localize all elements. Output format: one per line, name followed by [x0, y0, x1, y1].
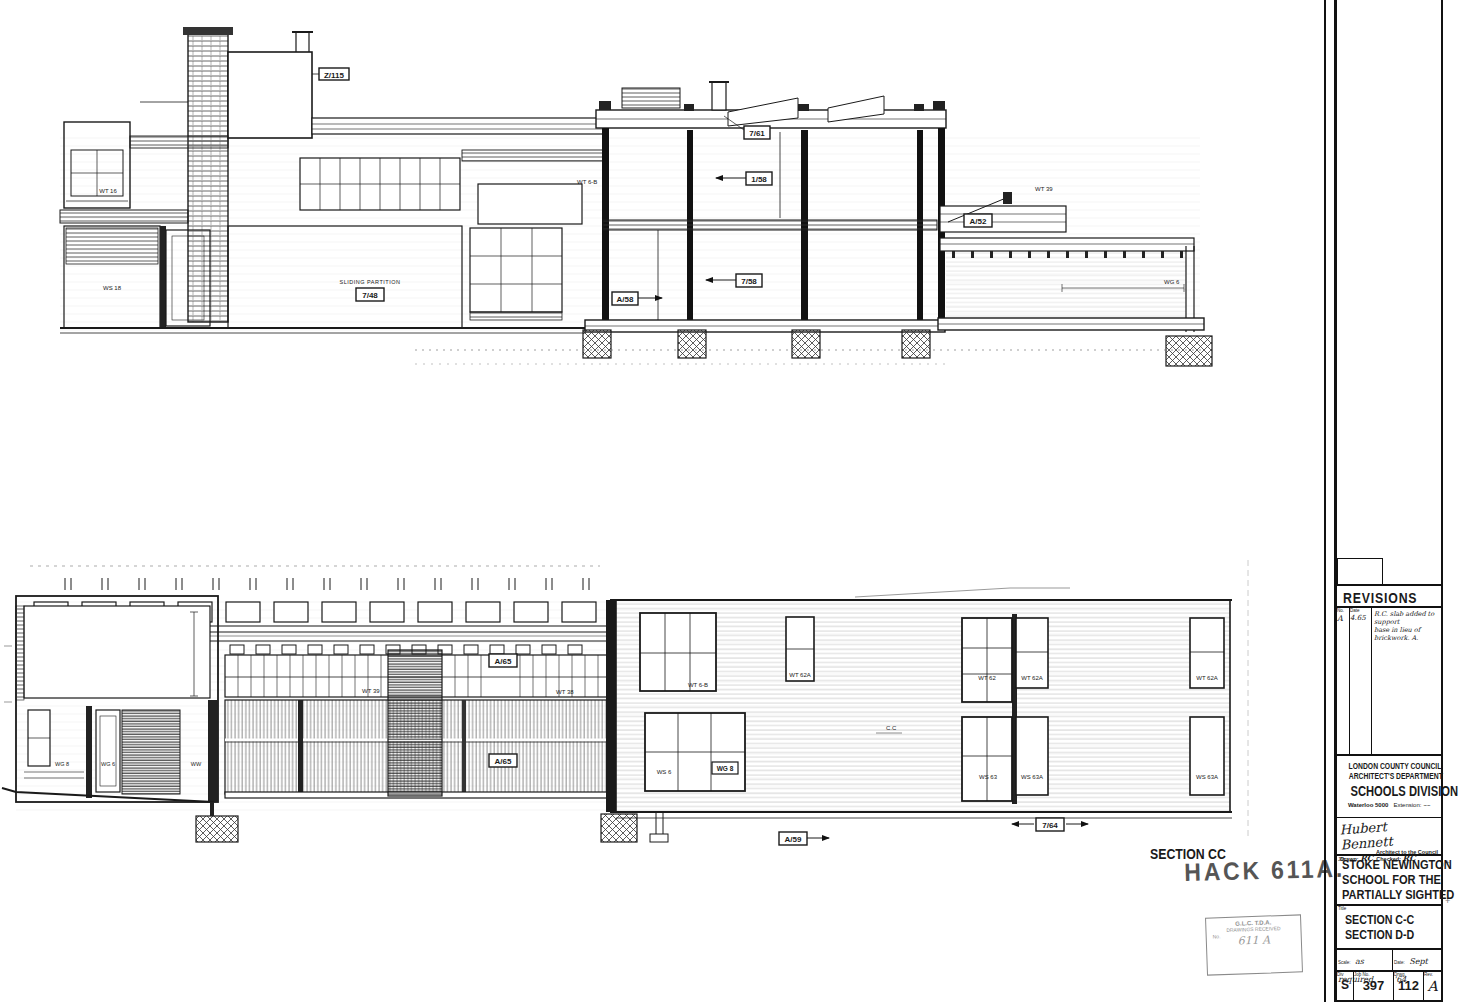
titleblock-revisions-header: REVISIONS: [1337, 584, 1441, 608]
window-tag: WT 16: [99, 188, 117, 194]
window-tag: WG 6: [1164, 279, 1180, 285]
titleblock-scale-date: Scale: as required Date: Sept '64.: [1337, 950, 1441, 972]
window-tag: WT 62: [978, 675, 996, 681]
window-tag: WG 8: [717, 765, 734, 772]
section-cc-drawing: WG 8 WG 6 WW: [2, 560, 1248, 845]
titleblock-title: Title SECTION C-C SECTION D-D: [1337, 906, 1441, 950]
titleblock-revisions-table: No. A Date 4.65 R.C. slab added to suppo…: [1337, 608, 1441, 756]
titleblock-spare-box: [1337, 558, 1383, 585]
window-tag: WT 62A: [1196, 675, 1218, 681]
job-title-line3: PARTIALLY SIGHTED: [1342, 887, 1454, 902]
detail-ref: A/65: [495, 757, 512, 766]
date-label: Date:: [1394, 960, 1405, 965]
div-value: S: [1337, 978, 1353, 992]
council-line1: LONDON COUNTY COUNCIL: [1349, 761, 1442, 771]
extension-label: Extension:: [1393, 802, 1421, 808]
window-tag: WS 63A: [1021, 774, 1043, 780]
titleblock-numbers: Div S Job No. 397 Drwg. 112 Rev. A: [1337, 972, 1441, 1002]
detail-ref: 7/48: [362, 291, 378, 300]
window-tag: WS 6: [657, 769, 672, 775]
rev-entry-no: A: [1337, 614, 1349, 623]
sheet-border-line: [1441, 0, 1443, 1002]
window-tag: WG 8: [55, 761, 69, 767]
detail-ref: 1/58: [751, 175, 767, 184]
detail-ref: A/58: [617, 295, 634, 304]
division-name: SCHOOLS DIVISION: [1350, 783, 1458, 799]
window-tag: WT 62A: [789, 672, 811, 678]
drwg-no-value: 112: [1394, 978, 1423, 993]
drawing-title-line1: SECTION C-C: [1345, 912, 1414, 927]
window-tag: WS 63: [979, 774, 998, 780]
level-mark: C.C: [886, 725, 897, 731]
extension-value: ––: [1423, 801, 1430, 809]
job-title-line2: SCHOOL FOR THE: [1342, 872, 1441, 887]
window-tag: WT 39: [1035, 186, 1053, 192]
revisions-title: REVISIONS: [1343, 589, 1417, 606]
window-tag: WT 39: [362, 688, 380, 694]
window-tag: WT 62A: [1021, 675, 1043, 681]
hack-611a-stamp: HACK 611A.: [1184, 854, 1345, 887]
rev-entry-note-line2: base in lieu of brickwork. A.: [1374, 626, 1439, 642]
window-tag: WG 6: [101, 761, 115, 767]
architect-signature: Hubert Bennett: [1339, 816, 1439, 853]
scale-label: Scale:: [1338, 960, 1351, 965]
window-tag: WT 38: [556, 689, 574, 695]
sheet-border-line: [1324, 0, 1326, 1002]
detail-ref: A/59: [785, 835, 802, 844]
detail-ref-z115: Z/115: [324, 71, 345, 80]
drawing-title-line2: SECTION D-D: [1345, 927, 1414, 942]
window-tag: WT 6-B: [688, 682, 708, 688]
window-tag: WS 63A: [1196, 774, 1218, 780]
titleblock-council: LONDON COUNTY COUNCIL ARCHITECT'S DEPART…: [1337, 756, 1441, 818]
job-no-value: 397: [1354, 978, 1393, 993]
titleblock-job: Job STOKE NEWINGTON SCHOOL FOR THE PARTI…: [1337, 856, 1441, 906]
window-tag: WW: [191, 761, 202, 767]
glc-received-stamp: G.L.C. T.D.A. DRAWINGS RECEIVED No. 611 …: [1205, 914, 1303, 975]
detail-ref: A/65: [495, 657, 512, 666]
council-line2: ARCHITECT'S DEPARTMENT: [1349, 771, 1443, 781]
council-phone: Waterloo 5000: [1348, 802, 1388, 808]
rev-entry-note-line1: R.C. slab added to support: [1374, 610, 1439, 626]
window-tag: WS 18: [103, 285, 122, 291]
rev-entry-date: 4.65: [1350, 614, 1371, 622]
drawing-sheet: Z/115 WT 6-B WS 18 WT 16 SLIDING PARTITI…: [0, 0, 1458, 1002]
detail-ref: 7/64: [1042, 821, 1058, 830]
room-note: SLIDING PARTITION: [340, 279, 401, 285]
titleblock-signature: Hubert Bennett Architect to the Council …: [1337, 818, 1441, 856]
detail-ref: 7/61: [749, 129, 765, 138]
job-title-line1: STOKE NEWINGTON: [1342, 857, 1452, 872]
rev-value: A: [1424, 978, 1441, 994]
detail-ref: 7/58: [741, 277, 757, 286]
hack-611a-stamp-text: HACK 611A.: [1184, 854, 1345, 886]
section-dd-drawing: Z/115 WT 6-B WS 18 WT 16 SLIDING PARTITI…: [60, 27, 1212, 366]
detail-ref: A/52: [970, 217, 987, 226]
